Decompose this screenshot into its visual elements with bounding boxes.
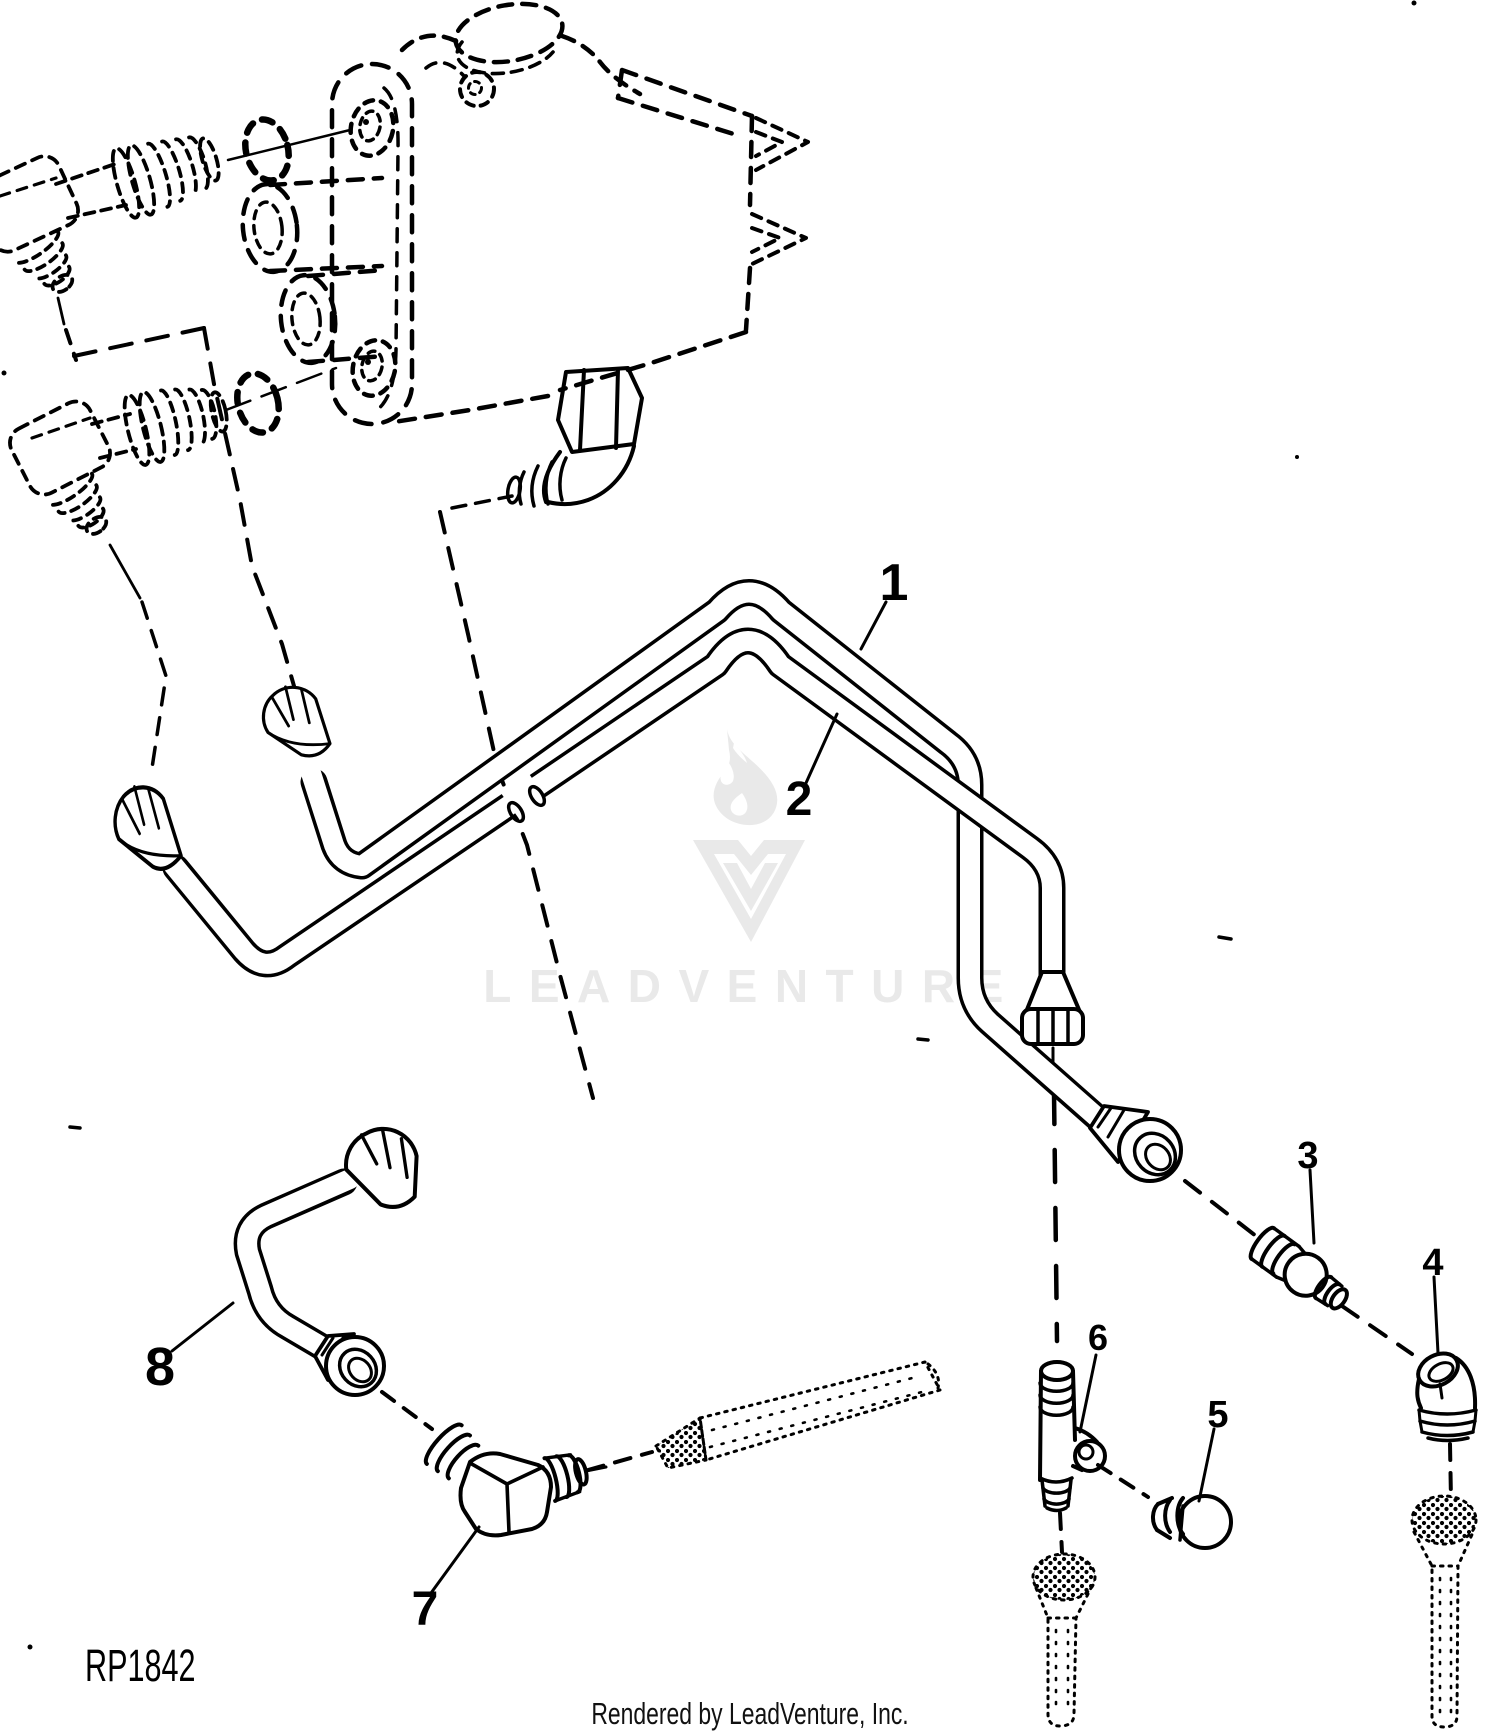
svg-text:RP1842: RP1842 (85, 1641, 196, 1691)
svg-text:Rendered by LeadVenture, Inc.: Rendered by LeadVenture, Inc. (591, 1696, 908, 1731)
svg-text:4: 4 (1422, 1242, 1443, 1284)
svg-text:3: 3 (1297, 1135, 1318, 1177)
svg-text:7: 7 (412, 1583, 439, 1636)
svg-text:2: 2 (786, 773, 813, 826)
svg-text:6: 6 (1088, 1317, 1108, 1358)
svg-text:5: 5 (1207, 1394, 1228, 1436)
svg-text:8: 8 (145, 1337, 175, 1397)
svg-text:1: 1 (880, 554, 909, 612)
